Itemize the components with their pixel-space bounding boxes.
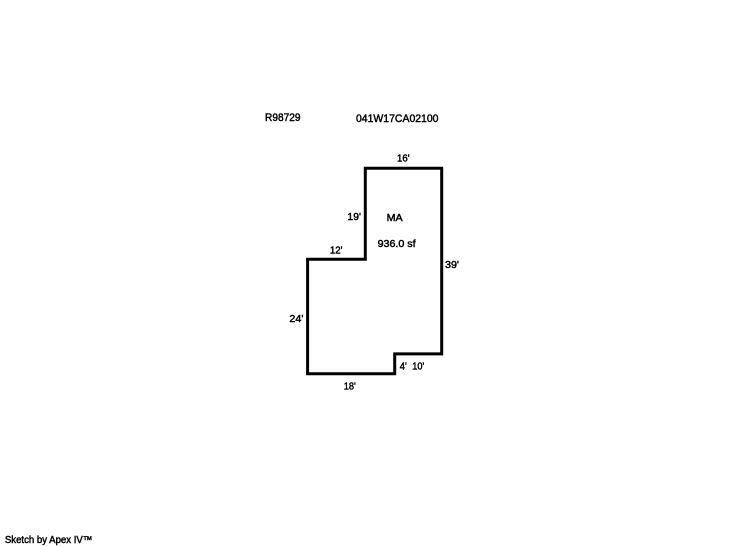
- svg-text:16': 16': [397, 153, 410, 164]
- svg-text:10': 10': [412, 362, 424, 373]
- svg-text:39': 39': [445, 260, 459, 271]
- svg-text:MA: MA: [387, 213, 403, 224]
- svg-text:12': 12': [330, 246, 343, 257]
- svg-text:041W17CA02100: 041W17CA02100: [356, 113, 439, 125]
- svg-text:936.0 sf: 936.0 sf: [378, 239, 416, 250]
- svg-text:18': 18': [344, 382, 356, 393]
- svg-text:24': 24': [289, 314, 303, 325]
- svg-text:R98729: R98729: [265, 112, 301, 124]
- svg-text:4': 4': [400, 362, 407, 373]
- svg-text:Sketch by Apex IV™: Sketch by Apex IV™: [5, 535, 93, 546]
- svg-text:19': 19': [347, 212, 361, 223]
